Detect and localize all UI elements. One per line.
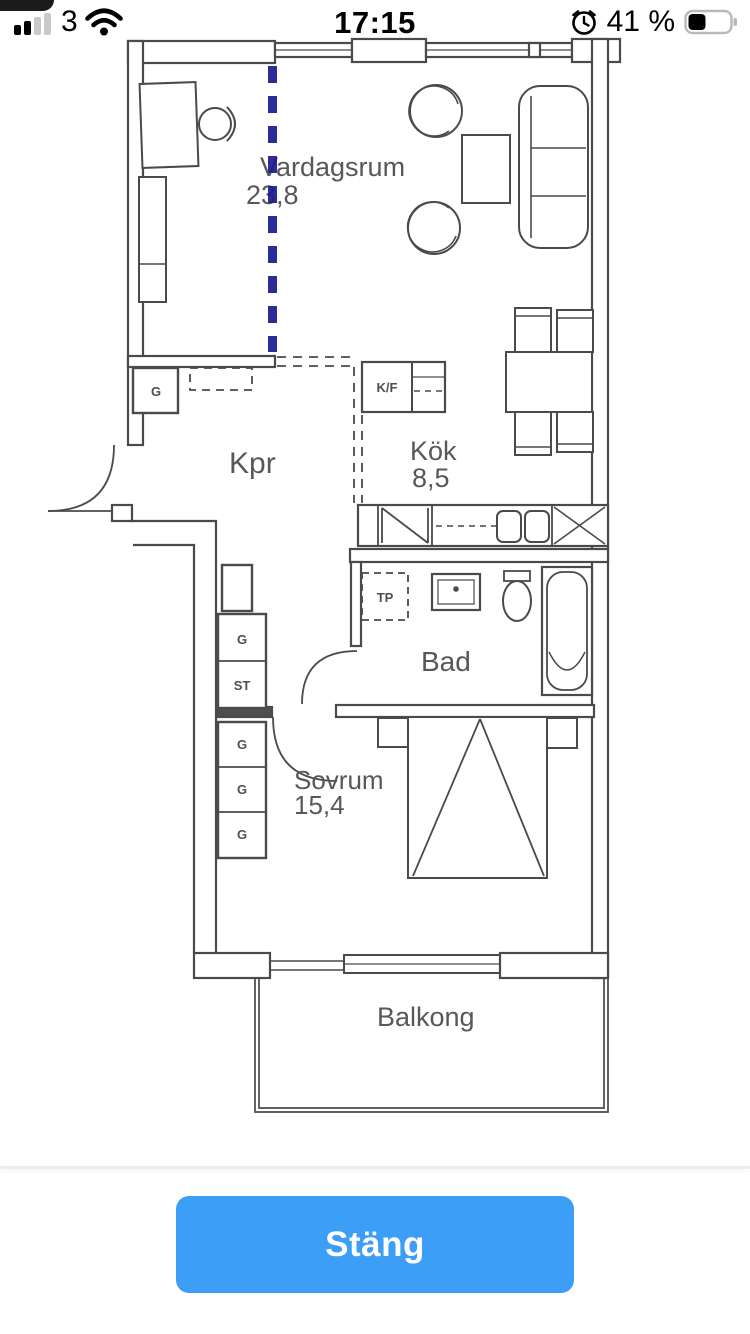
dryer-label: TP (377, 590, 394, 605)
bedroom-furniture (378, 717, 577, 878)
balcony-structure (194, 953, 608, 1112)
cleaning-closet-label: ST (234, 678, 251, 693)
room-label-vardagsrum: Vardagsrum (260, 152, 405, 182)
alarm-clock-icon (570, 8, 598, 36)
wardrobe-label: G (237, 632, 247, 647)
room-label-bad: Bad (421, 646, 471, 677)
dining-table-and-chairs (506, 308, 593, 455)
battery-percent-label: 41 % (607, 5, 675, 39)
room-label-balkong: Balkong (377, 1002, 475, 1032)
close-button[interactable]: Stäng (176, 1196, 574, 1293)
lower-left-wall (130, 521, 216, 953)
close-button-label: Stäng (325, 1225, 425, 1265)
bathroom-fixtures (362, 567, 592, 695)
room-area-sovrum: 15,4 (294, 790, 345, 820)
room-label-kok: Kök (410, 436, 457, 466)
fridge-freezer-label: K/F (377, 380, 398, 395)
room-label-kpr: Kpr (229, 447, 276, 480)
room-area-kok: 8,5 (412, 463, 450, 493)
wardrobe-label: G (151, 384, 161, 399)
wardrobe-label: G (237, 737, 247, 752)
wardrobe-label: G (237, 827, 247, 842)
status-bar: 3 17:15 41 % (0, 0, 750, 44)
floor-plan: Vardagsrum 23,8 Kpr Kök 8,5 Bad Sovrum 1… (0, 0, 750, 1170)
entrance-door-swing (48, 445, 114, 511)
living-room-furniture (139, 82, 588, 302)
wardrobe-label: G (237, 782, 247, 797)
phone-screen: 3 17:15 41 % (0, 0, 750, 1334)
battery-icon (684, 9, 738, 35)
